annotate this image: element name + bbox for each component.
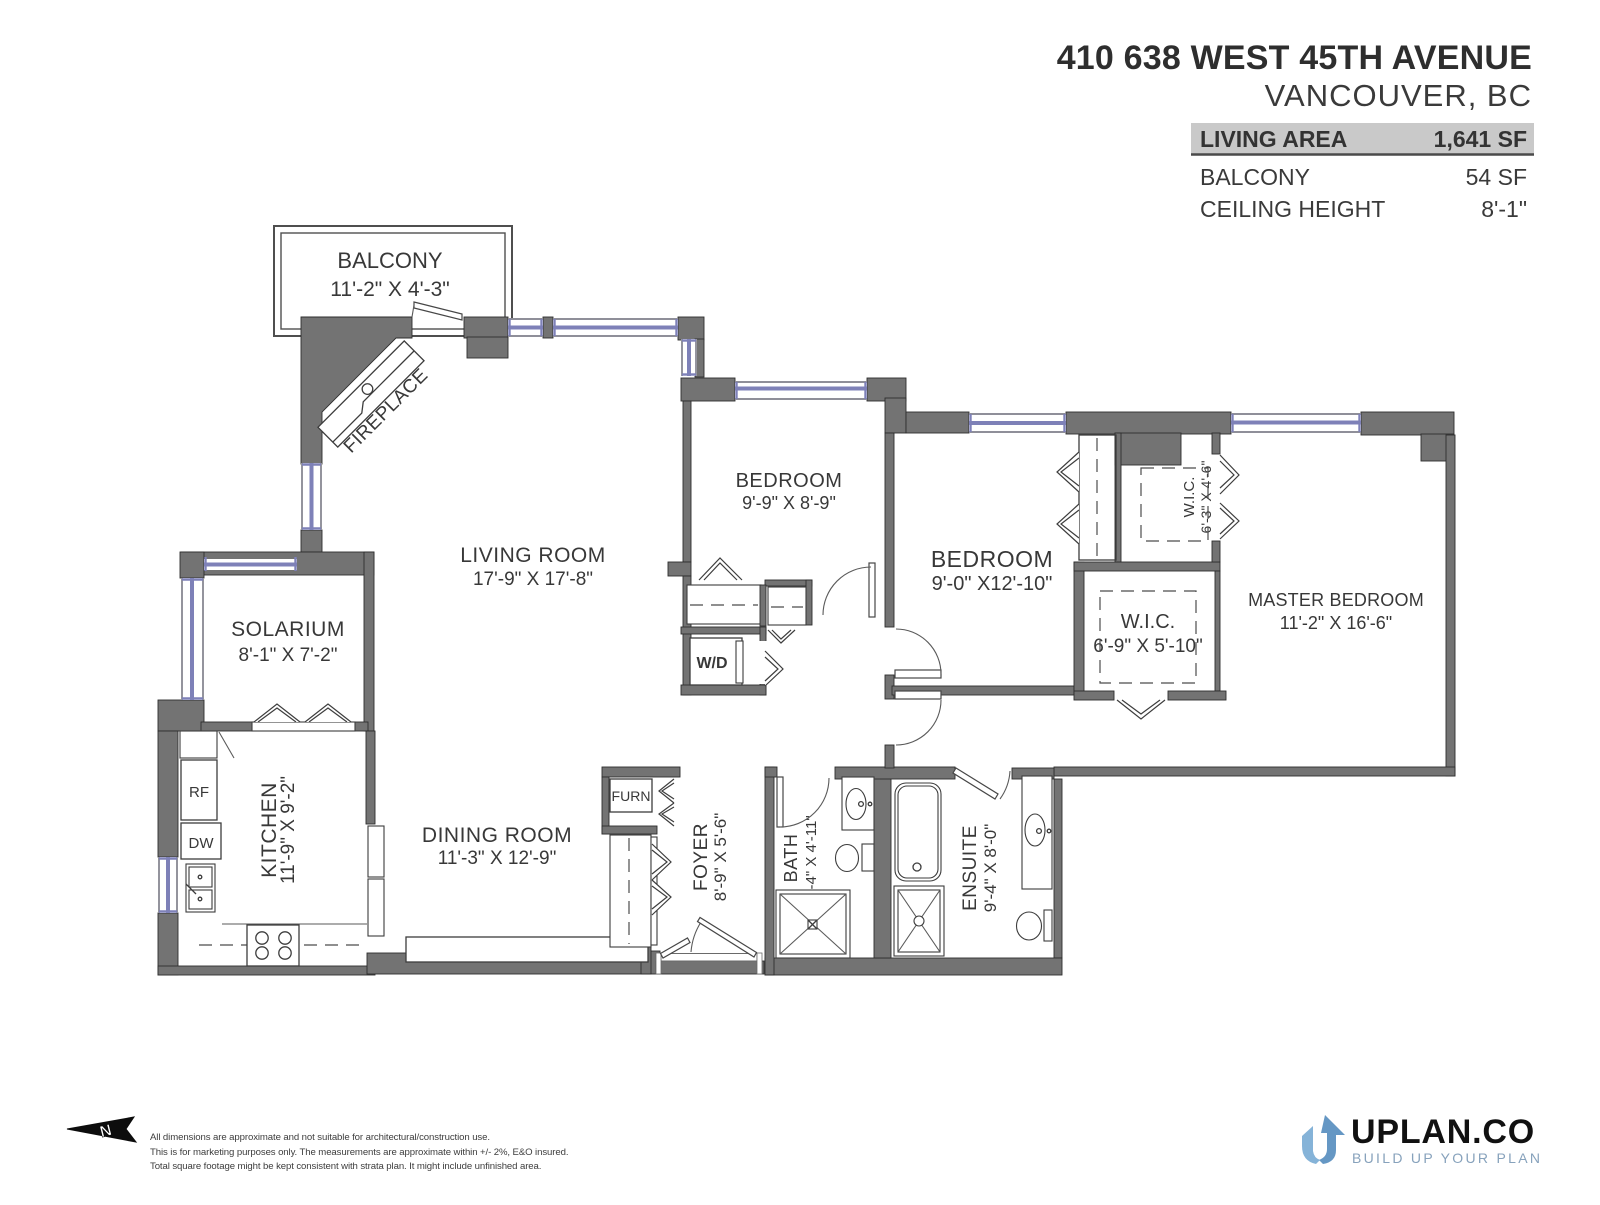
svg-text:LIVING AREA: LIVING AREA	[1200, 126, 1347, 152]
svg-text:11'-2" X 16'-6": 11'-2" X 16'-6"	[1280, 613, 1392, 633]
svg-text:BALCONY: BALCONY	[1200, 164, 1310, 190]
svg-text:W.I.C.: W.I.C.	[1181, 477, 1198, 518]
svg-text:DW: DW	[189, 835, 215, 852]
svg-text:1,641 SF: 1,641 SF	[1434, 126, 1527, 152]
svg-text:BUILD UP YOUR PLAN: BUILD UP YOUR PLAN	[1352, 1150, 1542, 1166]
svg-text:BALCONY: BALCONY	[337, 248, 442, 273]
svg-text:410 638 WEST 45TH AVENUE: 410 638 WEST 45TH AVENUE	[1057, 39, 1532, 77]
svg-text:8'-1": 8'-1"	[1481, 196, 1527, 222]
svg-text:FOYER: FOYER	[691, 823, 712, 891]
svg-text:11'-2" X 4'-3": 11'-2" X 4'-3"	[330, 278, 449, 301]
svg-text:VANCOUVER, BC: VANCOUVER, BC	[1265, 78, 1532, 113]
svg-text:MASTER BEDROOM: MASTER BEDROOM	[1248, 590, 1424, 610]
svg-text:8'-1" X 7'-2": 8'-1" X 7'-2"	[239, 645, 338, 666]
svg-text:CEILING HEIGHT: CEILING HEIGHT	[1200, 196, 1385, 222]
svg-text:54 SF: 54 SF	[1466, 164, 1527, 190]
svg-text:RF: RF	[189, 784, 209, 801]
svg-text:9'-9" X 8'-9": 9'-9" X 8'-9"	[742, 493, 836, 513]
svg-text:11'-3" X 12'-9": 11'-3" X 12'-9"	[438, 848, 557, 869]
svg-text:DINING ROOM: DINING ROOM	[422, 824, 572, 847]
svg-text:8'-9" X 5'-6": 8'-9" X 5'-6"	[711, 813, 730, 902]
svg-text:6'-9" X 5'-10": 6'-9" X 5'-10"	[1093, 636, 1202, 657]
svg-text:6'-3" X 4'-6": 6'-3" X 4'-6"	[1198, 461, 1214, 534]
svg-text:SOLARIUM: SOLARIUM	[231, 618, 345, 641]
svg-text:9'-0" X12'-10": 9'-0" X12'-10"	[932, 573, 1053, 595]
svg-text:FURN: FURN	[612, 788, 651, 804]
svg-text:W.I.C.: W.I.C.	[1121, 611, 1175, 633]
svg-text:11'-9" X 9'-2": 11'-9" X 9'-2"	[278, 776, 299, 884]
svg-text:BEDROOM: BEDROOM	[736, 470, 843, 492]
svg-text:LIVING ROOM: LIVING ROOM	[460, 544, 606, 567]
svg-text:BATH: BATH	[781, 834, 801, 883]
svg-text:9'-4" X 4'-11": 9'-4" X 4'-11"	[803, 815, 820, 900]
svg-text:ENSUITE: ENSUITE	[960, 825, 981, 911]
svg-text:Total square footage might be: Total square footage might be kept consi…	[150, 1161, 541, 1172]
svg-text:UPLAN.CO: UPLAN.CO	[1351, 1113, 1535, 1151]
svg-text:17'-9" X 17'-8": 17'-9" X 17'-8"	[473, 569, 593, 590]
svg-text:9'-4" X 8'-0": 9'-4" X 8'-0"	[981, 824, 1000, 913]
svg-text:This is for marketing purposes: This is for marketing purposes only. The…	[150, 1147, 568, 1158]
svg-text:W/D: W/D	[696, 655, 727, 672]
svg-text:All dimensions are approximate: All dimensions are approximate and not s…	[150, 1132, 490, 1143]
svg-text:BEDROOM: BEDROOM	[931, 546, 1053, 572]
